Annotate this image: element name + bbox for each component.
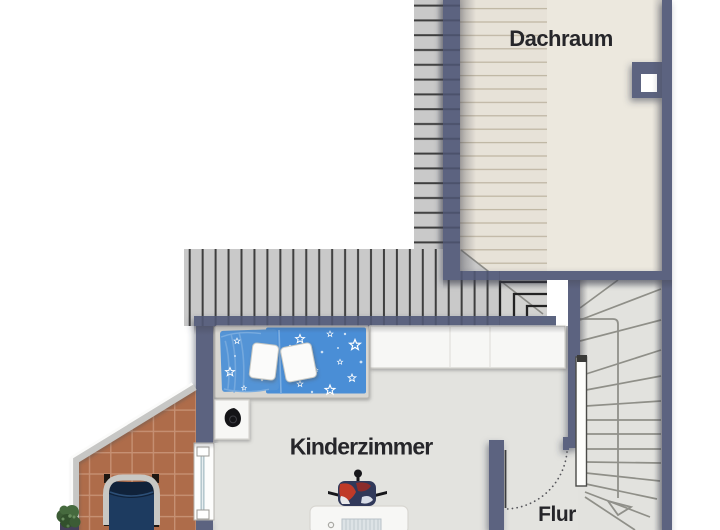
svg-text:Dachraum: Dachraum <box>509 26 613 51</box>
svg-text:Kinderzimmer: Kinderzimmer <box>290 434 434 460</box>
svg-text:Flur: Flur <box>538 503 576 526</box>
